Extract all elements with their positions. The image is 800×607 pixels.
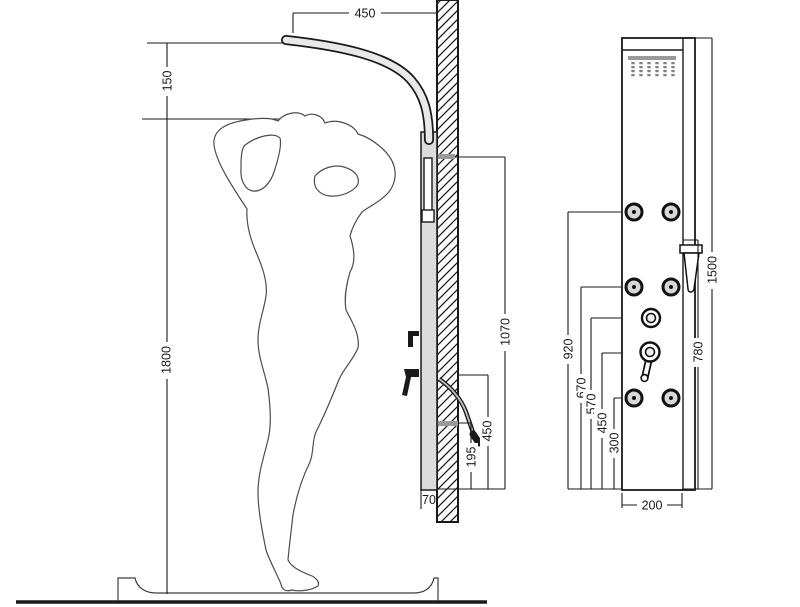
dim-label-450-top: 450 (355, 7, 376, 21)
wall-section (437, 0, 458, 522)
body-jet (626, 204, 642, 220)
dim-label-920: 920 (562, 339, 576, 360)
dim-panel-depth: 70 (421, 490, 436, 509)
diagram-canvas: 150 1800 450 10 (0, 0, 800, 607)
dim-label-1500: 1500 (706, 256, 720, 284)
dim-figure-height: 1800 (159, 119, 174, 594)
dim-arm-projection: 450 (293, 6, 437, 33)
mixer-valve-side (402, 331, 419, 396)
shower-tray (118, 578, 438, 601)
dim-label-780: 780 (692, 342, 706, 363)
dim-middle-jets: 670 (573, 287, 622, 489)
dim-label-1800: 1800 (160, 346, 174, 374)
dim-arm-above-head: 150 (142, 43, 296, 119)
dim-label-200: 200 (642, 499, 663, 513)
hose-mount-bar (437, 421, 458, 426)
dim-label-70: 70 (422, 493, 436, 507)
body-jet (663, 204, 679, 220)
rail-mount-bar (437, 154, 455, 159)
shower-panel-technical-drawing: 150 1800 450 10 (0, 0, 800, 607)
dim-mixer: 450 (594, 353, 622, 489)
dim-label-150: 150 (161, 71, 175, 92)
panel-front (622, 38, 695, 490)
body-jet (626, 390, 642, 406)
hand-shower-head-icon (473, 434, 479, 443)
dim-panel-width: 200 (622, 493, 682, 513)
dim-label-1070: 1070 (499, 318, 513, 346)
dim-label-300: 300 (608, 433, 622, 454)
person-silhouette (214, 113, 395, 591)
diverter-knob (642, 309, 660, 327)
dim-label-450-side: 450 (481, 421, 495, 442)
hand-shower-rail (422, 158, 434, 222)
dim-label-195: 195 (465, 447, 479, 468)
body-jet (663, 279, 679, 295)
body-jet (626, 279, 642, 295)
body-jet (663, 390, 679, 406)
